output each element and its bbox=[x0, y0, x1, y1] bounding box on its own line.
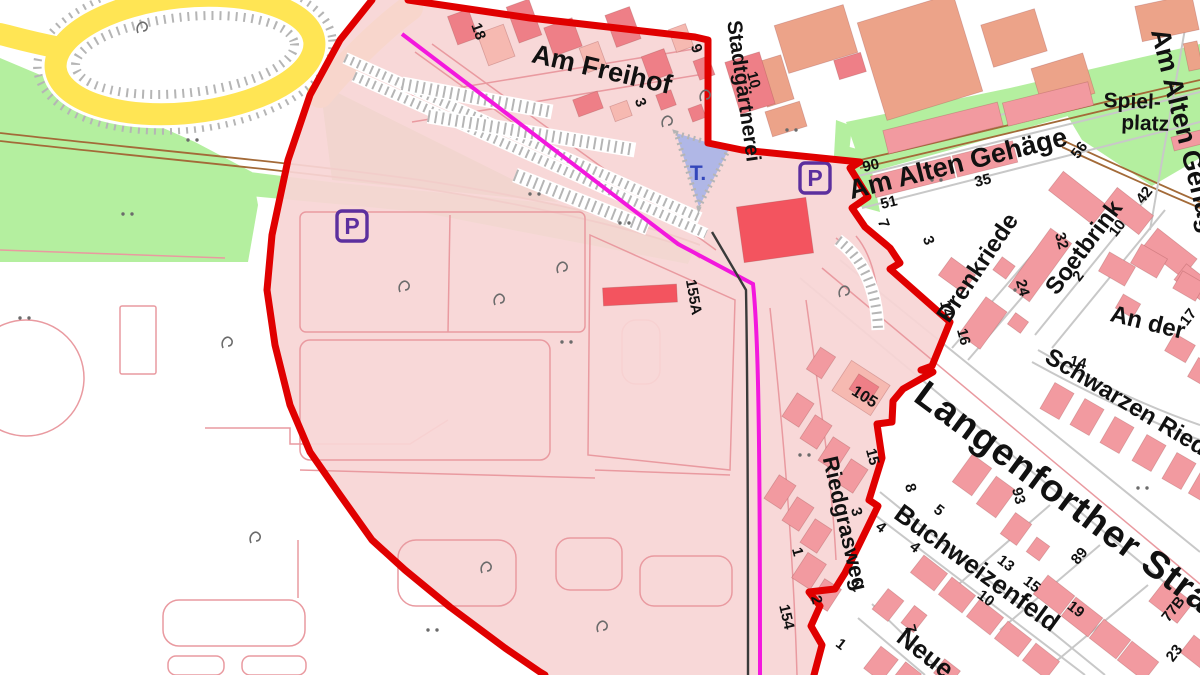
house-number: 35 bbox=[973, 170, 993, 191]
building bbox=[736, 197, 813, 262]
building bbox=[1099, 252, 1136, 286]
building bbox=[981, 9, 1047, 67]
survey-dot bbox=[785, 128, 788, 131]
house-number: 4 bbox=[872, 518, 890, 537]
street-label: An der bbox=[1108, 300, 1188, 345]
cadastral-map[interactable]: T.PPAm FreihofStadtgärtnereiAm Alten Geh… bbox=[0, 0, 1200, 675]
survey-dot bbox=[121, 212, 124, 215]
building bbox=[603, 284, 678, 306]
survey-dot bbox=[627, 221, 630, 224]
house-number: 89 bbox=[1068, 544, 1092, 568]
tree-icon bbox=[222, 337, 232, 348]
survey-dot bbox=[1145, 486, 1148, 489]
street-label: platz bbox=[1121, 111, 1170, 136]
survey-dot bbox=[27, 316, 30, 319]
house-number: 23 bbox=[1163, 641, 1187, 665]
building bbox=[765, 101, 807, 136]
survey-dot bbox=[537, 192, 540, 195]
parcel-outline bbox=[0, 320, 84, 436]
building bbox=[1007, 313, 1028, 334]
building bbox=[938, 577, 975, 613]
survey-dot bbox=[426, 628, 429, 631]
survey-dot bbox=[794, 128, 797, 131]
survey-dot bbox=[807, 453, 810, 456]
survey-dot bbox=[195, 138, 198, 141]
parcel-outline bbox=[120, 306, 156, 374]
green-area bbox=[0, 58, 258, 262]
survey-dot bbox=[528, 192, 531, 195]
survey-dot bbox=[186, 138, 189, 141]
building bbox=[864, 646, 899, 675]
survey-dot bbox=[798, 453, 801, 456]
building bbox=[1162, 453, 1196, 490]
parking-letter: P bbox=[344, 213, 359, 239]
parcel-outline bbox=[242, 656, 306, 675]
house-number: 51 bbox=[879, 192, 899, 213]
house-number: 7 bbox=[874, 217, 893, 231]
transformer-label: T. bbox=[690, 162, 706, 185]
survey-dot bbox=[1136, 486, 1139, 489]
building bbox=[1026, 537, 1050, 561]
map-canvas[interactable]: T.PPAm FreihofStadtgärtnereiAm Alten Geh… bbox=[0, 0, 1200, 675]
survey-dot bbox=[618, 221, 621, 224]
building bbox=[1000, 513, 1031, 546]
building bbox=[1100, 417, 1134, 454]
survey-dot bbox=[435, 628, 438, 631]
survey-dot bbox=[130, 212, 133, 215]
building bbox=[1040, 383, 1074, 420]
parcel-outline bbox=[168, 656, 224, 675]
house-number: 3 bbox=[919, 234, 938, 248]
building bbox=[872, 589, 904, 622]
building bbox=[1070, 399, 1104, 436]
tree-icon bbox=[250, 532, 260, 543]
survey-dot bbox=[18, 316, 21, 319]
yellow-road-arm bbox=[0, 34, 60, 48]
building bbox=[1132, 435, 1166, 472]
survey-dot bbox=[560, 340, 563, 343]
building bbox=[1022, 643, 1059, 675]
building bbox=[994, 621, 1031, 657]
parcel-outline bbox=[163, 600, 305, 646]
house-number: 8 bbox=[901, 482, 920, 494]
survey-dot bbox=[569, 340, 572, 343]
building bbox=[1188, 357, 1200, 384]
street-label: Spiel- bbox=[1103, 89, 1161, 114]
parking-letter: P bbox=[807, 165, 822, 191]
house-number: 1 bbox=[832, 635, 849, 654]
house-number: 93 bbox=[1008, 486, 1029, 507]
